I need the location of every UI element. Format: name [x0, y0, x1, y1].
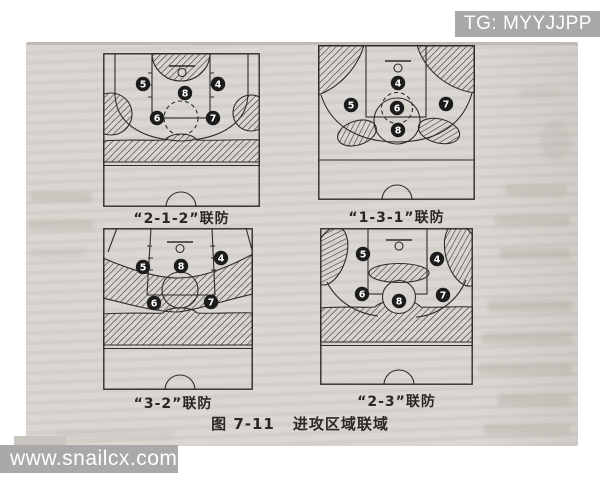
label-2-3: “2-3”联防 [320, 391, 473, 411]
label-3-2: “3-2”联防 [98, 393, 248, 413]
player-number: 4 [395, 78, 402, 89]
player-number: 8 [182, 88, 189, 99]
player-number: 7 [443, 99, 450, 110]
player-number: 7 [210, 113, 217, 124]
watermark-bottom-left: www.snailcx.com [0, 445, 178, 473]
basket-rim [178, 69, 186, 77]
center-circle-half [165, 375, 195, 390]
midcourt-band-hatched [103, 134, 260, 162]
bleed-smudge [478, 363, 572, 375]
label-2-1-2: “2-1-2”联防 [103, 208, 260, 228]
player-number: 6 [394, 103, 401, 114]
right-low-zone-hatched [416, 114, 463, 147]
left-corner-zone-hatched [318, 45, 364, 95]
player-number: 5 [360, 249, 367, 260]
center-circle-half [382, 185, 412, 200]
center-circle-half [384, 370, 414, 385]
left-corner-zone-hatched [320, 228, 354, 289]
player-number: 4 [434, 254, 441, 265]
bleed-smudge [30, 192, 92, 202]
bleed-smudge [540, 120, 570, 162]
bleed-smudge [31, 248, 86, 258]
bleed-smudge [482, 332, 572, 344]
bleed-smudge [500, 248, 570, 259]
player-number: 6 [151, 298, 158, 309]
player-number: 4 [215, 79, 222, 90]
figure-number: 图 7-11 [211, 415, 275, 433]
basket-rim [395, 242, 403, 250]
high-post-zone-hatched [369, 264, 429, 283]
player-number: 5 [348, 100, 355, 111]
watermark-top-text: TG: MYYJJPP [464, 13, 592, 35]
center-circle-half [166, 192, 196, 207]
player-number: 5 [140, 79, 147, 90]
scanned-book-page: 54867 “2-1-2”联防 45678 “1-3-1”联防 [0, 0, 600, 480]
left-low-zone-hatched [334, 115, 379, 150]
bleed-smudge [520, 88, 560, 98]
player-number: 6 [359, 289, 366, 300]
basket-rim [394, 64, 402, 72]
court-diagram-2-1-2: 54867 [103, 53, 260, 207]
figure-title: 进攻区域联域 [293, 415, 389, 433]
player-number: 4 [218, 253, 225, 264]
player-number: 8 [395, 125, 402, 136]
player-number: 7 [208, 297, 215, 308]
watermark-top-right: TG: MYYJJPP [455, 11, 600, 37]
left-wing-zone-hatched [103, 93, 132, 135]
bleed-smudge [505, 185, 567, 196]
bleed-smudge [495, 215, 570, 226]
watermark-bottom-text: www.snailcx.com [10, 447, 177, 471]
court-diagram-3-2: 58467 [103, 228, 253, 390]
player-number: 6 [154, 113, 161, 124]
right-wing-zone-hatched [233, 95, 260, 131]
figure-caption: 图 7-11进攻区域联域 [0, 413, 600, 434]
player-number: 8 [178, 261, 185, 272]
player-number: 8 [396, 296, 403, 307]
player-number: 5 [140, 262, 147, 273]
court-diagram-2-3: 54678 [320, 228, 473, 385]
bleed-smudge [498, 394, 570, 406]
court-diagram-1-3-1: 45678 [318, 45, 475, 200]
player-number: 7 [440, 290, 447, 301]
midcourt-band-hatched [103, 308, 253, 345]
basket-rim [176, 245, 184, 253]
bleed-smudge [28, 220, 94, 230]
bleed-smudge [488, 300, 572, 312]
label-1-3-1: “1-3-1”联防 [318, 207, 475, 227]
